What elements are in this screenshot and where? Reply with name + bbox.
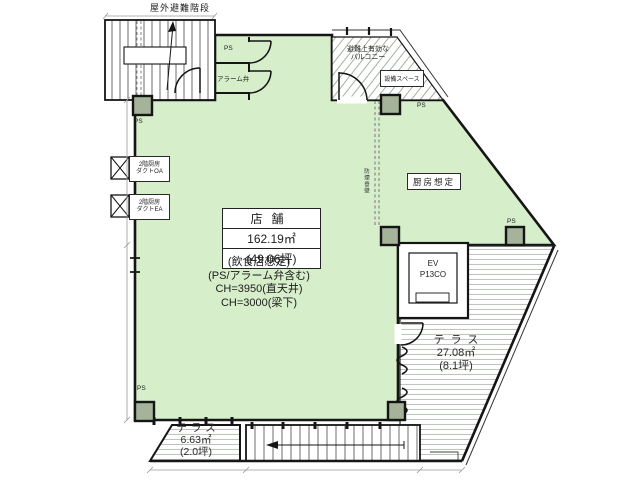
store-note3: CH=3950(直天井) xyxy=(189,283,329,297)
column xyxy=(133,96,152,115)
ps-mark-bottom-left: PS xyxy=(137,385,146,392)
duct-ea-box: 2階厨房 ダクトEA xyxy=(129,194,170,220)
outdoor-stair-label: 屋外避難階段 xyxy=(128,4,232,14)
column xyxy=(506,227,524,245)
column xyxy=(381,227,399,245)
column xyxy=(388,402,405,420)
terrace-bottom-tsubo: (2.0坪) xyxy=(158,446,234,458)
equipment-space-label: 設備スペース xyxy=(384,74,419,83)
terrace-bottom-area: 6.63㎡ xyxy=(158,434,234,446)
store-area-m2: 162.19㎡ xyxy=(223,228,320,248)
terrace-bottom-label: テラス 6.63㎡ (2.0坪) xyxy=(158,422,234,458)
store-note2: (PS/アラーム弁含む) xyxy=(189,270,329,284)
duct-ea-line1: 2階厨房 xyxy=(139,200,160,208)
stair-landing xyxy=(124,47,186,64)
kitchen-label: 厨房想定 xyxy=(413,176,455,188)
alarm-valve-label: アラーム弁 xyxy=(217,76,249,83)
duct-ea-line2: ダクトEA xyxy=(136,207,162,215)
bottom-stair xyxy=(246,425,420,461)
store-note4: CH=3000(梁下) xyxy=(189,297,329,311)
elevator-shaft xyxy=(398,243,468,318)
terrace-right-name: テラス xyxy=(408,334,504,347)
duct-oa-box: 2階厨房 ダクトOA xyxy=(129,156,170,182)
column xyxy=(135,402,154,421)
store-name: 店舗 xyxy=(223,209,320,228)
ps-mark-right: PS xyxy=(507,218,516,225)
elevator-label: EV P13CO xyxy=(409,258,457,280)
column xyxy=(381,95,400,114)
terrace-bottom-name: テラス xyxy=(158,422,234,434)
equipment-space-box: 設備スペース xyxy=(380,70,424,87)
balcony-label-line1: 避難上有効な xyxy=(338,46,398,54)
ps-mark-balcony: PS xyxy=(417,102,426,109)
duct-symbol-oa xyxy=(111,157,129,179)
ps-mark-top-left: PS xyxy=(134,118,143,125)
duct-symbol-ea xyxy=(111,195,129,217)
balcony-label-line2: バルコニー xyxy=(338,54,398,62)
floor-plan: 屋外避難階段 PS アラーム弁 避難上有効な バルコニー 設備スペース PS P… xyxy=(0,0,640,480)
terrace-right-tsubo: (8.1坪) xyxy=(408,360,504,373)
store-notes: (飲食店想定) (PS/アラーム弁含む) CH=3950(直天井) CH=300… xyxy=(189,256,329,310)
evacuation-balcony xyxy=(332,27,448,100)
store-note1: (飲食店想定) xyxy=(189,256,329,270)
terrace-right-label: テラス 27.08㎡ (8.1坪) xyxy=(408,334,504,373)
elevator-model: P13CO xyxy=(409,269,457,280)
ps-room-label: PS xyxy=(224,45,233,52)
balcony-label: 避難上有効な バルコニー xyxy=(338,46,398,61)
terrace-right-area: 27.08㎡ xyxy=(408,347,504,360)
duct-oa-line1: 2階厨房 xyxy=(139,162,160,170)
smoke-wall-label: 防煙垂壁 xyxy=(363,168,369,194)
kitchen-box: 厨房想定 xyxy=(407,173,461,190)
duct-oa-line2: ダクトOA xyxy=(136,169,163,177)
elevator-name: EV xyxy=(409,258,457,269)
